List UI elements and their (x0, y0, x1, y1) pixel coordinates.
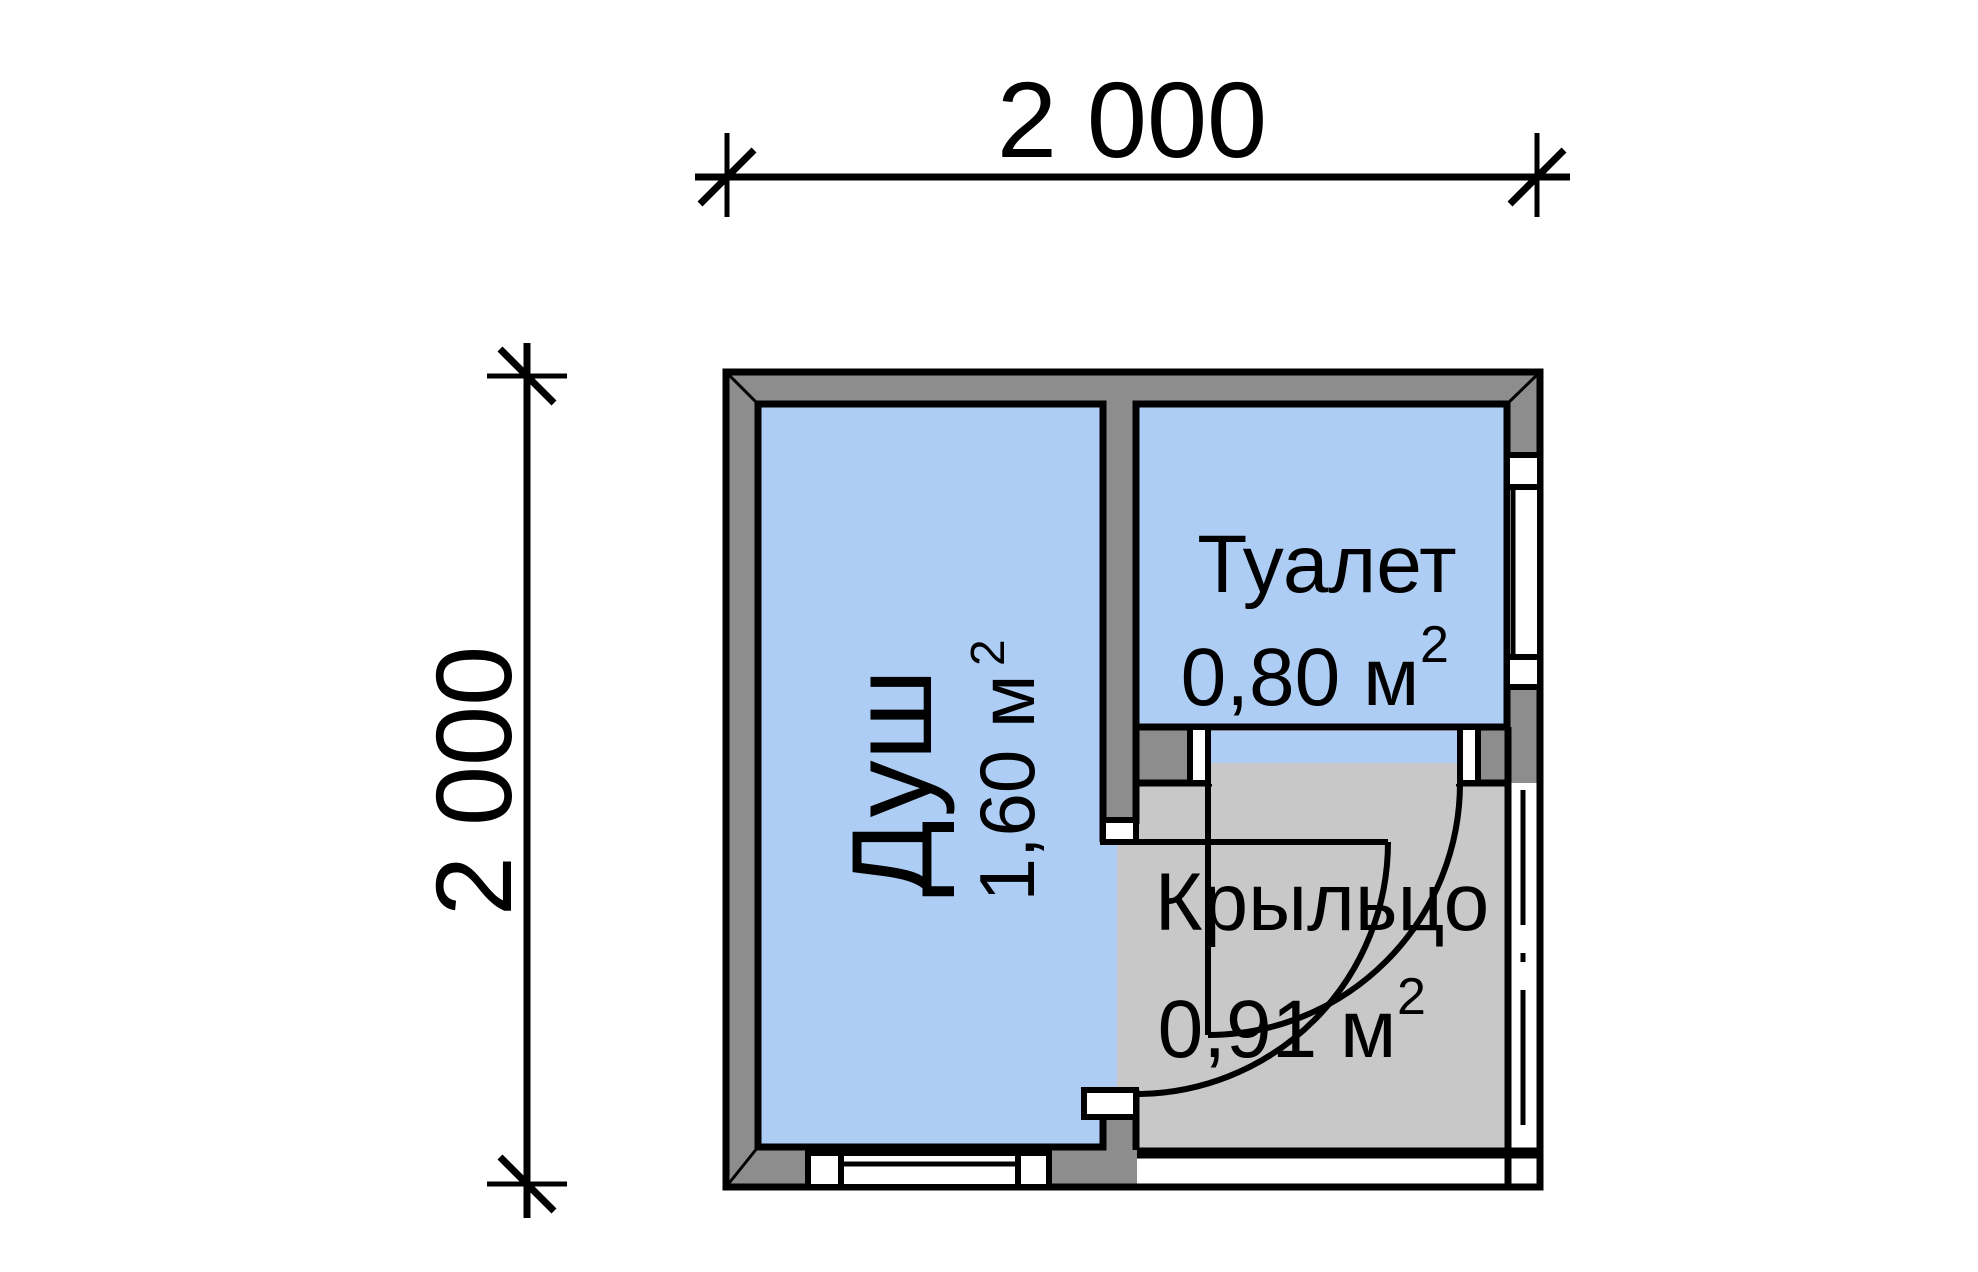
toilet-room-label: Туалет (1197, 519, 1456, 610)
shower-door-threshold-blue (1099, 842, 1117, 1090)
porch-room-area-sup: 2 (1397, 968, 1426, 1026)
toilet-window (1507, 455, 1540, 687)
wall-top (726, 372, 1540, 404)
porch-room-area: 0,91 м (1158, 984, 1397, 1075)
toilet-room-area-sup: 2 (1420, 616, 1449, 674)
floor-plan-page: Душ 1,60 м 2 Туалет 0,80 м 2 Крыльцо 0,9… (0, 0, 1978, 1272)
shower-window-opening (808, 1153, 1049, 1187)
wall-interior-vertical-stub (1103, 1117, 1136, 1150)
shower-room-label: Душ (829, 669, 956, 897)
toilet-door-threshold-blue (1208, 731, 1460, 763)
shower-door-jamb-upper (1103, 820, 1136, 842)
wall-interior-horizontal-left (1136, 727, 1190, 783)
dimension-left-label: 2 000 (413, 646, 534, 916)
shower-window (808, 1153, 1049, 1187)
toilet-door-jamb-right (1460, 727, 1478, 783)
shower-room-area: 1,60 м (963, 674, 1051, 901)
toilet-room-area: 0,80 м (1181, 632, 1420, 723)
shower-door-threshold-gray (1117, 842, 1136, 1090)
wall-interior-horizontal-right (1478, 727, 1507, 783)
toilet-door-jamb-left (1190, 727, 1208, 783)
porch-room-label: Крыльцо (1155, 857, 1490, 948)
dimension-top-label: 2 000 (997, 59, 1267, 180)
shower-door-jamb-lower (1084, 1090, 1136, 1117)
wall-left (726, 372, 758, 1187)
toilet-door-threshold-gray (1208, 763, 1460, 784)
shower-room-area-sup: 2 (962, 639, 1015, 666)
wall-interior-vertical (1103, 404, 1136, 820)
floor-plan-canvas: Душ 1,60 м 2 Туалет 0,80 м 2 Крыльцо 0,9… (0, 0, 1978, 1272)
